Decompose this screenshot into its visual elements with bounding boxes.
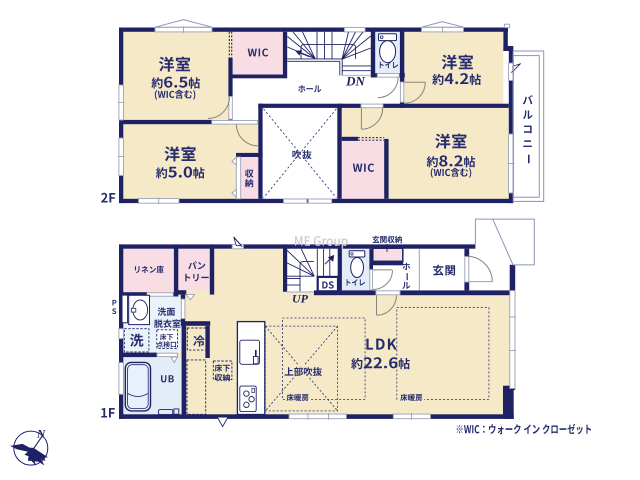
svg-text:N: N: [36, 429, 46, 441]
svg-text:UP: UP: [292, 291, 309, 305]
svg-text:DN: DN: [345, 74, 365, 89]
